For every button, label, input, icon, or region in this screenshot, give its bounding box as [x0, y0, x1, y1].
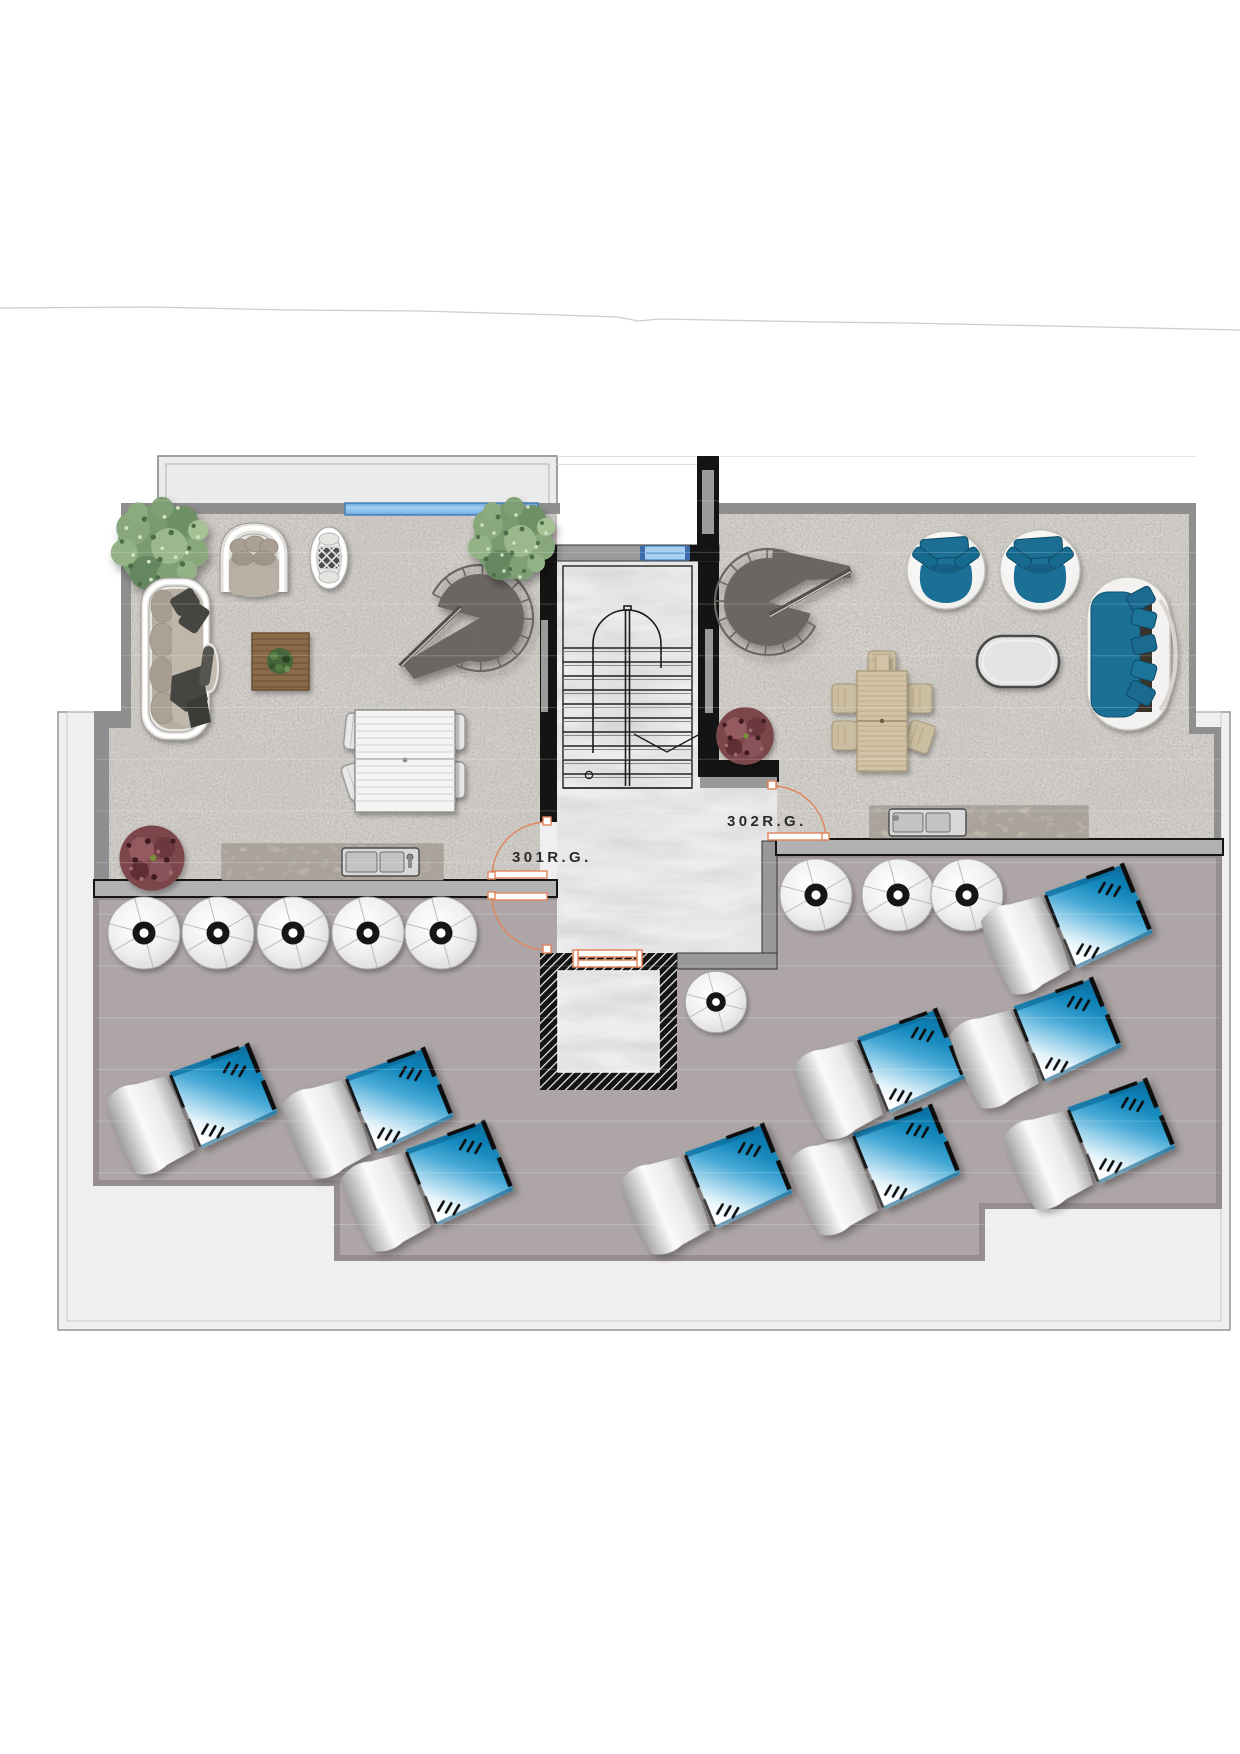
svg-text:302R.G.: 302R.G.	[727, 813, 807, 830]
svg-text:301R.G.: 301R.G.	[512, 849, 592, 866]
